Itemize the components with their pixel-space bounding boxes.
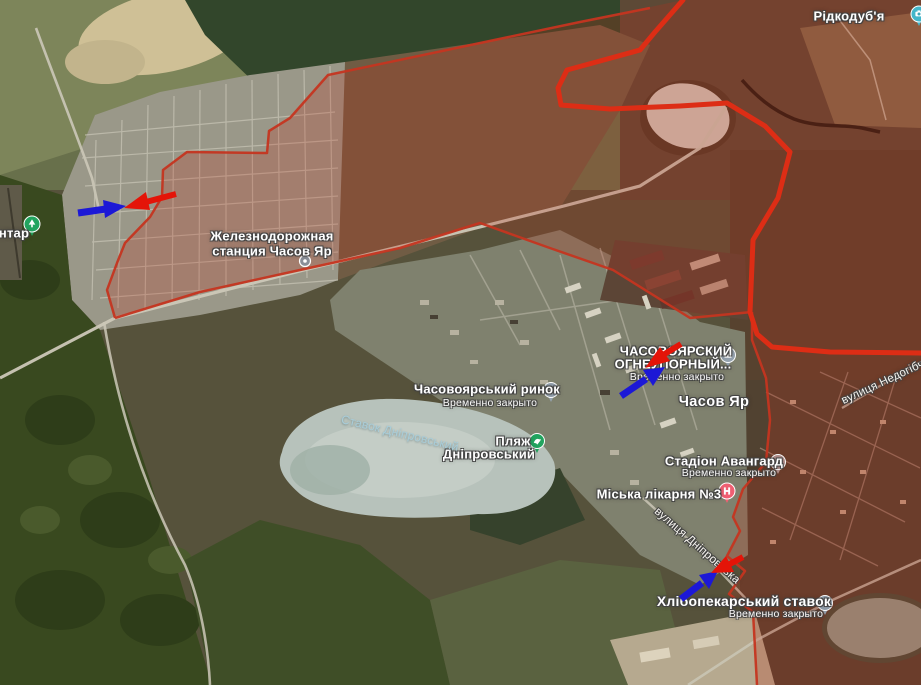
town-label-chasiv-yar: Часов Яр bbox=[679, 394, 750, 410]
pond-label[interactable]: Хлібопекарський ставок bbox=[657, 593, 831, 609]
cemetery-label-fragment[interactable]: нтар bbox=[0, 226, 29, 241]
stadium-closed-label: Временно закрыто bbox=[682, 467, 776, 479]
station-label-line2[interactable]: станция Часов Яр bbox=[212, 244, 331, 259]
camera-pin-icon[interactable] bbox=[911, 6, 921, 26]
market-closed-label: Временно закрыто bbox=[443, 397, 537, 409]
factory-closed-label: Временно закрыто bbox=[630, 371, 724, 383]
market-label[interactable]: Часовоярський ринок bbox=[414, 382, 560, 397]
map-canvas[interactable]: Рідкодуб'я Железнодорожная станция Часов… bbox=[0, 0, 921, 685]
pond-closed-label: Временно закрыто bbox=[729, 608, 823, 620]
station-label-line1[interactable]: Железнодорожная bbox=[210, 229, 333, 244]
factory-label-line2[interactable]: ОГНЕУПОРНЫЙ... bbox=[615, 357, 732, 372]
hospital-label[interactable]: Міська лікарня №3 bbox=[597, 487, 722, 502]
map-pins bbox=[0, 0, 921, 685]
village-label-ridkodubya[interactable]: Рідкодуб'я bbox=[814, 9, 885, 24]
